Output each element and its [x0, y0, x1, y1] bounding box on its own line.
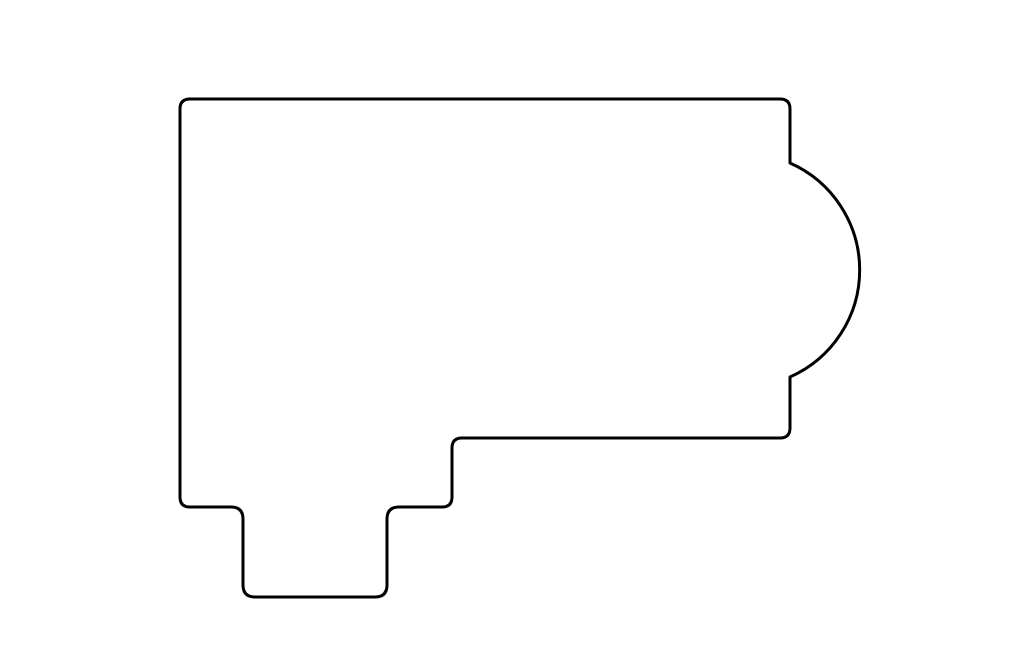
- drawing-canvas: [0, 0, 1024, 663]
- pool-plan-svg: [0, 0, 1024, 663]
